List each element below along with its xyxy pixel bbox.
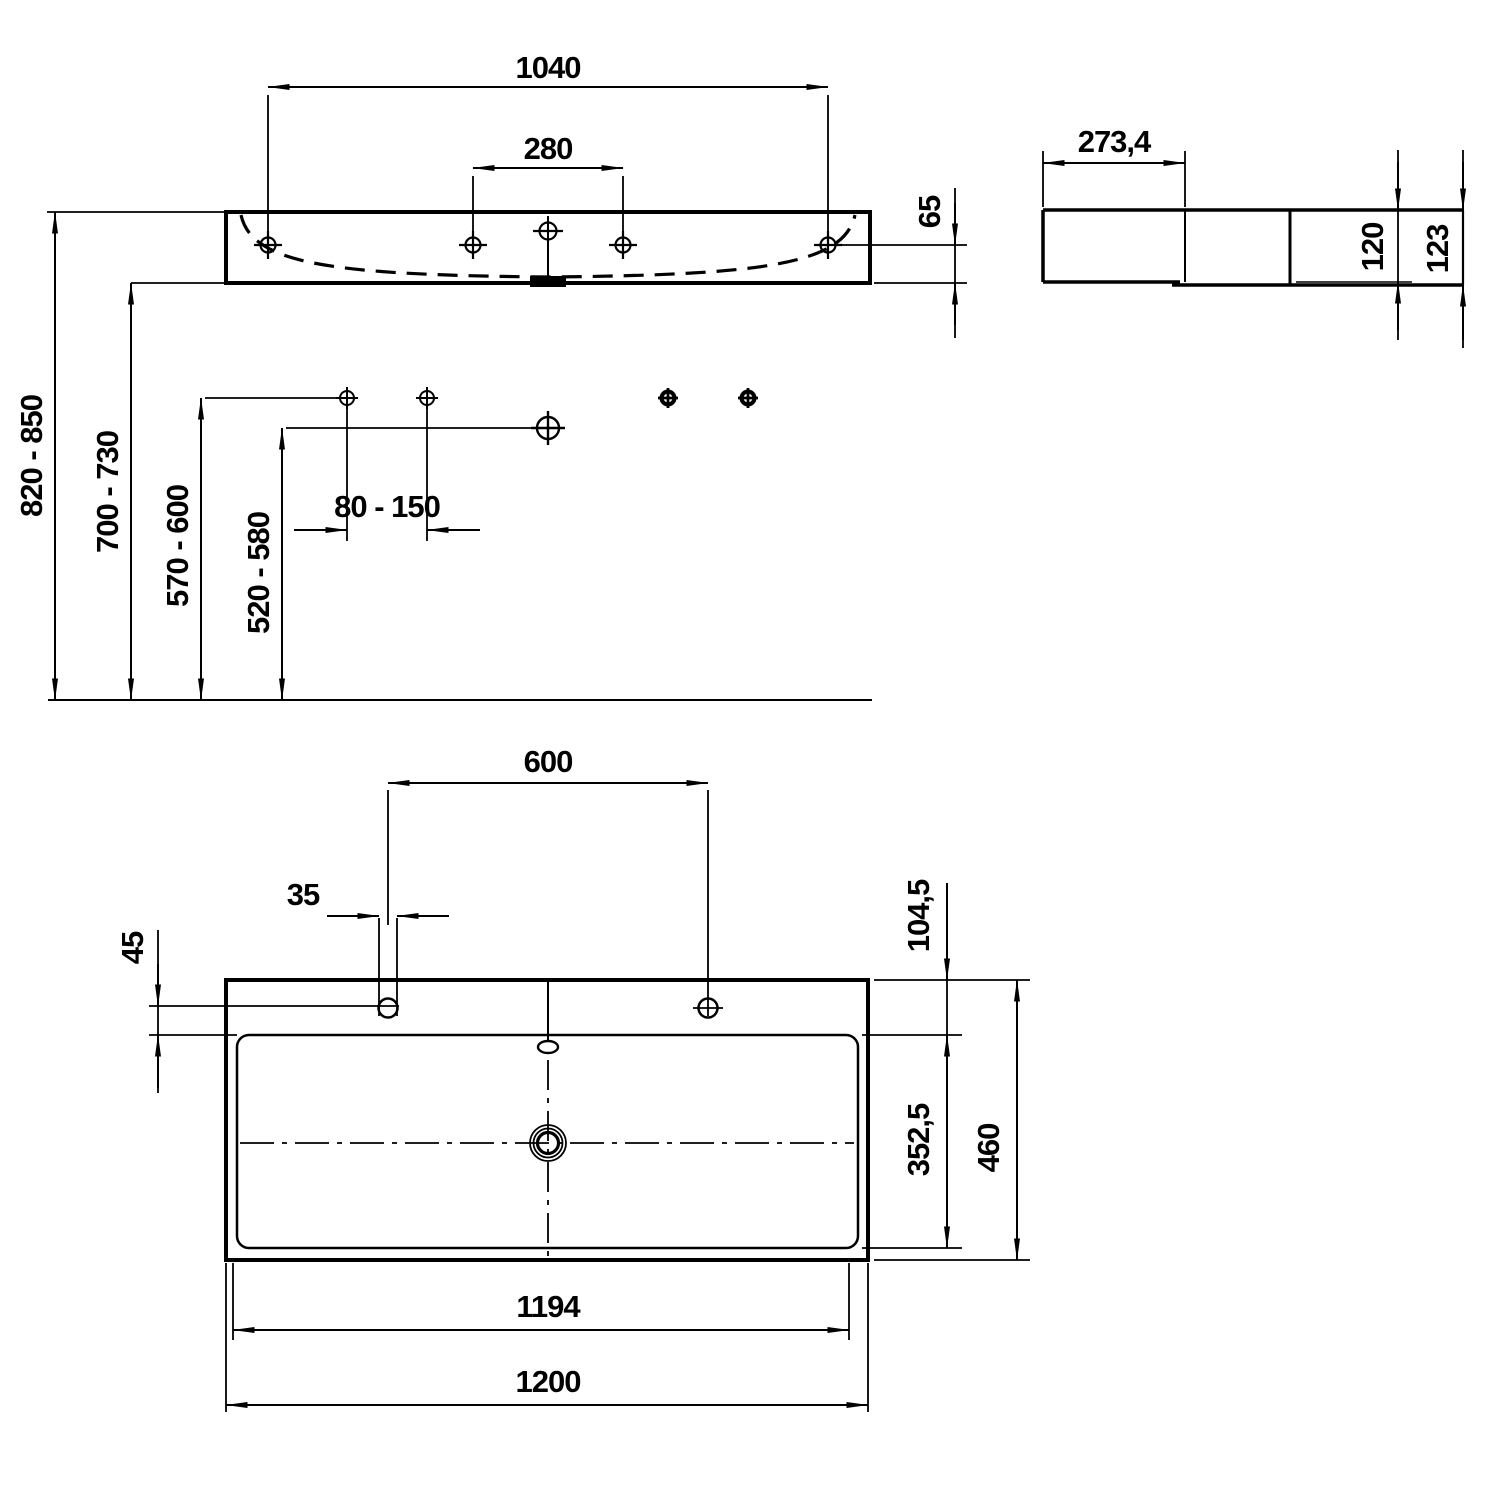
washbasin-dimension-drawing: 1040 280 65 820 - 850 700 - 730 bbox=[0, 0, 1500, 1500]
dim-front-drain-height: 520 - 580 bbox=[241, 428, 531, 700]
dim-label-104-5: 104,5 bbox=[901, 879, 936, 952]
technical-drawing-sheet: 1040 280 65 820 - 850 700 - 730 bbox=[0, 0, 1500, 1500]
plan-right-tap-hole bbox=[693, 790, 723, 1018]
dim-plan-tap-hole-spacing: 600 bbox=[388, 744, 708, 783]
dim-front-hole-to-bottom: 65 bbox=[912, 188, 955, 338]
dim-side-overall-height: 123 bbox=[1420, 150, 1463, 348]
dim-label-600: 600 bbox=[524, 744, 573, 779]
dim-plan-tap-hole-edge-offset: 45 bbox=[115, 930, 399, 1093]
plan-view: 600 35 45 104,5 352,5 bbox=[115, 744, 1030, 1412]
dim-label-570-600: 570 - 600 bbox=[160, 485, 195, 607]
dim-label-120: 120 bbox=[1355, 223, 1390, 272]
dim-side-bowl-depth: 273,4 bbox=[1043, 124, 1185, 207]
side-profile-outline bbox=[1043, 210, 1463, 285]
front-view: 1040 280 65 820 - 850 700 - 730 bbox=[14, 50, 967, 700]
side-view: 273,4 120 123 bbox=[1043, 124, 1463, 348]
dim-label-280: 280 bbox=[524, 131, 573, 166]
dim-label-700-730: 700 - 730 bbox=[90, 431, 125, 553]
plan-left-tap-hole bbox=[379, 790, 398, 1018]
dim-label-1194: 1194 bbox=[516, 1289, 581, 1324]
dim-side-body-height: 120 bbox=[1296, 150, 1412, 340]
plan-overflow-hole bbox=[538, 980, 558, 1053]
dim-label-123: 123 bbox=[1420, 224, 1455, 273]
dim-label-1040: 1040 bbox=[516, 50, 581, 85]
dim-plan-bottom-length: 1194 bbox=[233, 1263, 849, 1340]
dim-plan-overall-depth: 460 bbox=[874, 980, 1030, 1260]
dim-label-520-580: 520 - 580 bbox=[241, 512, 276, 634]
dim-front-rim-height: 820 - 850 bbox=[14, 212, 55, 700]
wall-fixing-crosshairs bbox=[336, 387, 758, 445]
front-drain-symbol bbox=[530, 276, 566, 287]
dim-label-352-5: 352,5 bbox=[901, 1103, 936, 1176]
dim-label-35: 35 bbox=[287, 877, 320, 912]
dim-label-460: 460 bbox=[971, 1124, 1006, 1173]
dim-front-underside-height: 700 - 730 bbox=[90, 283, 131, 700]
front-overflow-and-drain bbox=[530, 216, 566, 287]
dim-label-80-150: 80 - 150 bbox=[334, 489, 440, 524]
dim-label-1200: 1200 bbox=[516, 1364, 581, 1399]
dim-label-273-4: 273,4 bbox=[1078, 124, 1152, 159]
dim-plan-tap-hole-diameter: 35 bbox=[287, 877, 449, 916]
dim-plan-deck-and-bowl-depth: 104,5 352,5 bbox=[862, 879, 1030, 1248]
dim-label-820-850: 820 - 850 bbox=[14, 395, 49, 517]
dim-plan-overall-length: 1200 bbox=[226, 1263, 868, 1412]
dim-label-45: 45 bbox=[115, 931, 150, 964]
dim-label-65: 65 bbox=[912, 195, 947, 228]
